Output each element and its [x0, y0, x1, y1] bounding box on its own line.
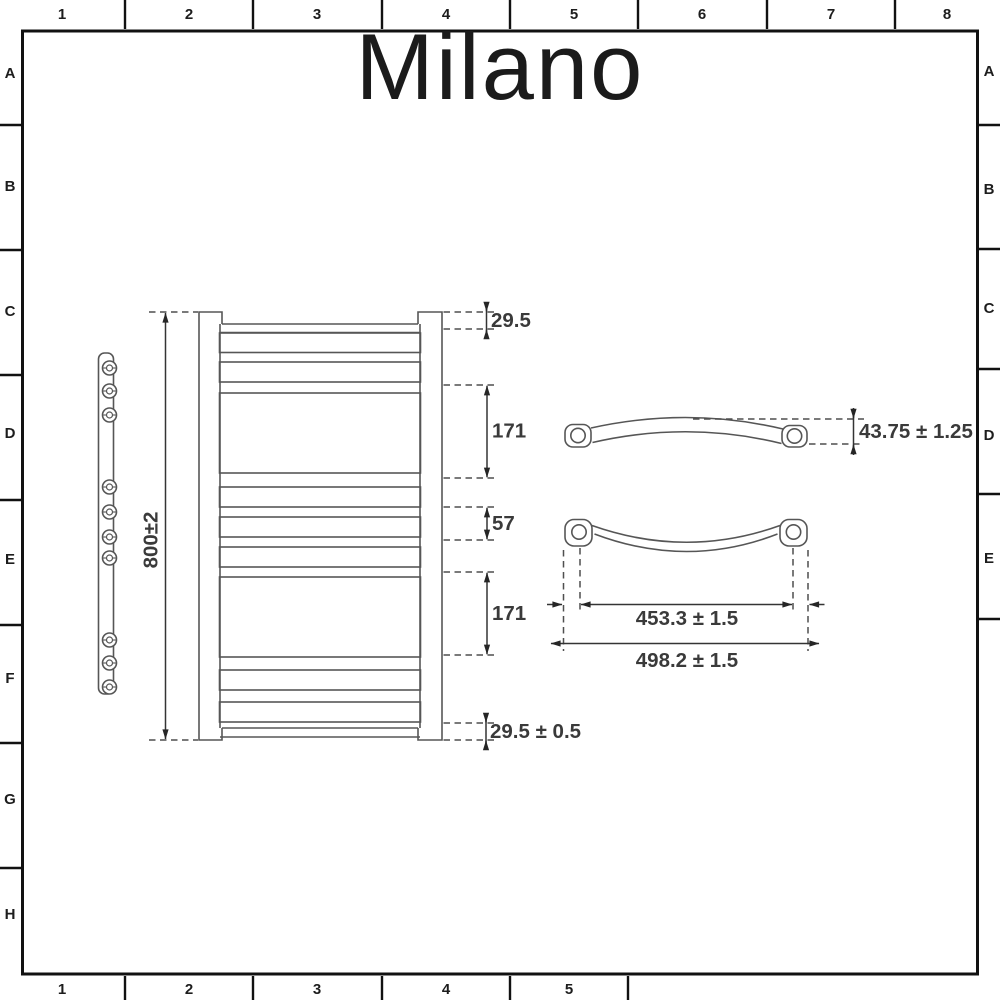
wall-bracket	[780, 520, 807, 547]
dimension-overall-height: 800±2	[140, 312, 199, 740]
wall-bracket	[565, 520, 592, 547]
rung	[220, 487, 421, 507]
grid-label: H	[5, 906, 16, 923]
technical-drawing-sheet: 1 2 3 4 5 6 7 8 1 2 3 4 5 A B C D E F G …	[0, 0, 1000, 1000]
grid-label: A	[984, 63, 995, 80]
top-offset-dim-label: 29.5	[491, 309, 531, 332]
grid-label: B	[5, 178, 16, 195]
bolt-icon	[103, 505, 117, 519]
centres-dim-label: 453.3 ± 1.5	[636, 607, 738, 630]
grid-label: C	[5, 303, 16, 320]
bracket-bolt-icon	[786, 525, 800, 539]
grid-label: 5	[565, 981, 573, 998]
rung	[220, 670, 421, 690]
grid-label: 6	[698, 6, 706, 23]
bolt-icon	[103, 361, 117, 375]
front-view	[199, 312, 442, 740]
grid-label: G	[4, 791, 16, 808]
grid-label: 7	[827, 6, 835, 23]
overall-width-dim-label: 498.2 ± 1.5	[636, 649, 738, 672]
grid-label: 2	[185, 6, 193, 23]
bolt-icon	[103, 480, 117, 494]
rung	[220, 362, 421, 382]
bolt-icon	[103, 680, 117, 694]
left-rail	[199, 312, 222, 740]
centre-gap-dim-label: 57	[492, 512, 515, 535]
grid-ruler-right: A B C D E	[979, 63, 1000, 619]
grid-label: 8	[943, 6, 951, 23]
bolt-icon	[103, 551, 117, 565]
grid-label: A	[5, 65, 16, 82]
grid-label: 2	[185, 981, 193, 998]
grid-label: E	[5, 551, 15, 568]
rung	[220, 517, 421, 537]
bolt-icon	[103, 656, 117, 670]
bar-curve	[592, 526, 780, 543]
rung	[220, 547, 421, 567]
grid-label: B	[984, 181, 995, 198]
crossbar-top-view-concave: 453.3 ± 1.5 498.2 ± 1.5	[547, 520, 825, 673]
lower-group-dim-label: 171	[492, 602, 526, 625]
bolt-icon	[103, 530, 117, 544]
grid-label: 4	[442, 981, 451, 998]
dimension-overall-width: 498.2 ± 1.5	[551, 644, 819, 673]
rung-group	[220, 577, 421, 657]
rung	[220, 333, 421, 353]
grid-label: C	[984, 300, 995, 317]
bottom-offset-dim-label: 29.5 ± 0.5	[490, 720, 581, 743]
bolt-icon	[103, 408, 117, 422]
grid-label: 1	[58, 981, 66, 998]
grid-label: D	[984, 427, 995, 444]
bolt-icon	[103, 384, 117, 398]
bracket-bolt-icon	[787, 429, 801, 443]
brand-logo: Milano	[356, 14, 645, 119]
crossbar-top-view-convex: 43.75 ± 1.25	[565, 408, 973, 455]
bar-curve	[593, 432, 782, 444]
grid-label: F	[5, 670, 14, 687]
rung-group	[220, 393, 421, 473]
dimension-bar-centres: 453.3 ± 1.5	[547, 605, 825, 631]
grid-ruler-left: A B C D E F G H	[0, 65, 21, 923]
grid-ruler-bottom: 1 2 3 4 5	[58, 976, 628, 1000]
bolt-icon	[103, 633, 117, 647]
bracket-bolt-icon	[572, 525, 586, 539]
right-rail	[418, 312, 442, 740]
rung	[220, 702, 421, 722]
height-dim-label: 800±2	[140, 512, 163, 569]
grid-label: E	[984, 550, 994, 567]
bracket-bolt-icon	[571, 428, 585, 442]
dimension-stack-right: 29.5 171 57 171 29.5 ± 0.5	[444, 302, 582, 750]
drawing-canvas: 1 2 3 4 5 6 7 8 1 2 3 4 5 A B C D E F G …	[0, 0, 1000, 1000]
depth-dim-label: 43.75 ± 1.25	[859, 420, 973, 443]
grid-label: 1	[58, 6, 66, 23]
grid-label: 3	[313, 6, 321, 23]
grid-label: 3	[313, 981, 321, 998]
grid-label: D	[5, 425, 16, 442]
side-view	[99, 353, 117, 694]
upper-group-dim-label: 171	[492, 420, 526, 443]
